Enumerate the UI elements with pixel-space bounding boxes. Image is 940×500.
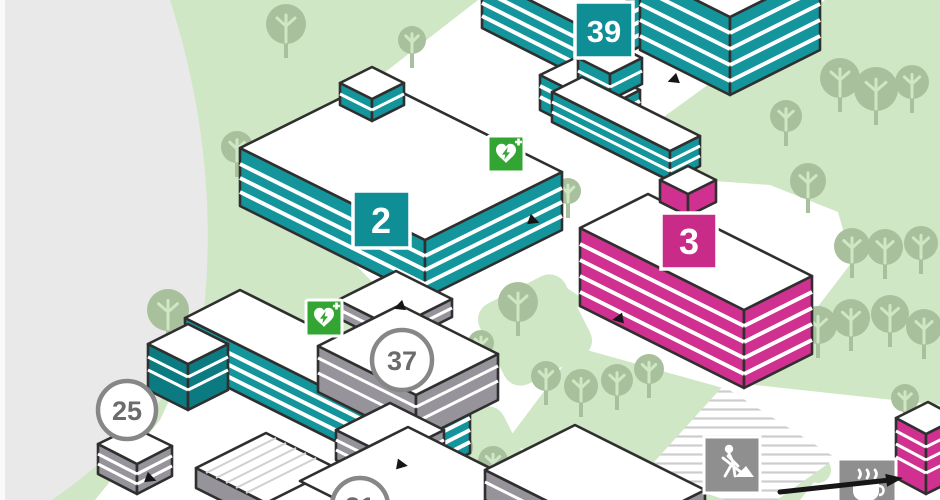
building-label-2[interactable]: 2 — [353, 191, 410, 248]
svg-text:39: 39 — [587, 14, 621, 49]
campus-map: 39 2 3 37 25 31 — [0, 0, 940, 500]
svg-text:3: 3 — [679, 221, 699, 262]
svg-text:25: 25 — [112, 396, 142, 426]
svg-text:2: 2 — [371, 200, 391, 241]
construction-icon[interactable] — [704, 437, 760, 493]
building-label-37[interactable]: 37 — [372, 330, 432, 390]
defibrillator-icon[interactable] — [306, 300, 342, 336]
map-edge — [0, 0, 5, 500]
building-pink-edge[interactable] — [896, 402, 940, 494]
defibrillator-icon[interactable] — [488, 136, 524, 172]
svg-text:37: 37 — [387, 346, 417, 376]
building-label-39[interactable]: 39 — [575, 2, 633, 58]
building-label-25[interactable]: 25 — [98, 381, 156, 439]
svg-text:31: 31 — [345, 492, 375, 500]
building-label-3[interactable]: 3 — [661, 213, 717, 269]
